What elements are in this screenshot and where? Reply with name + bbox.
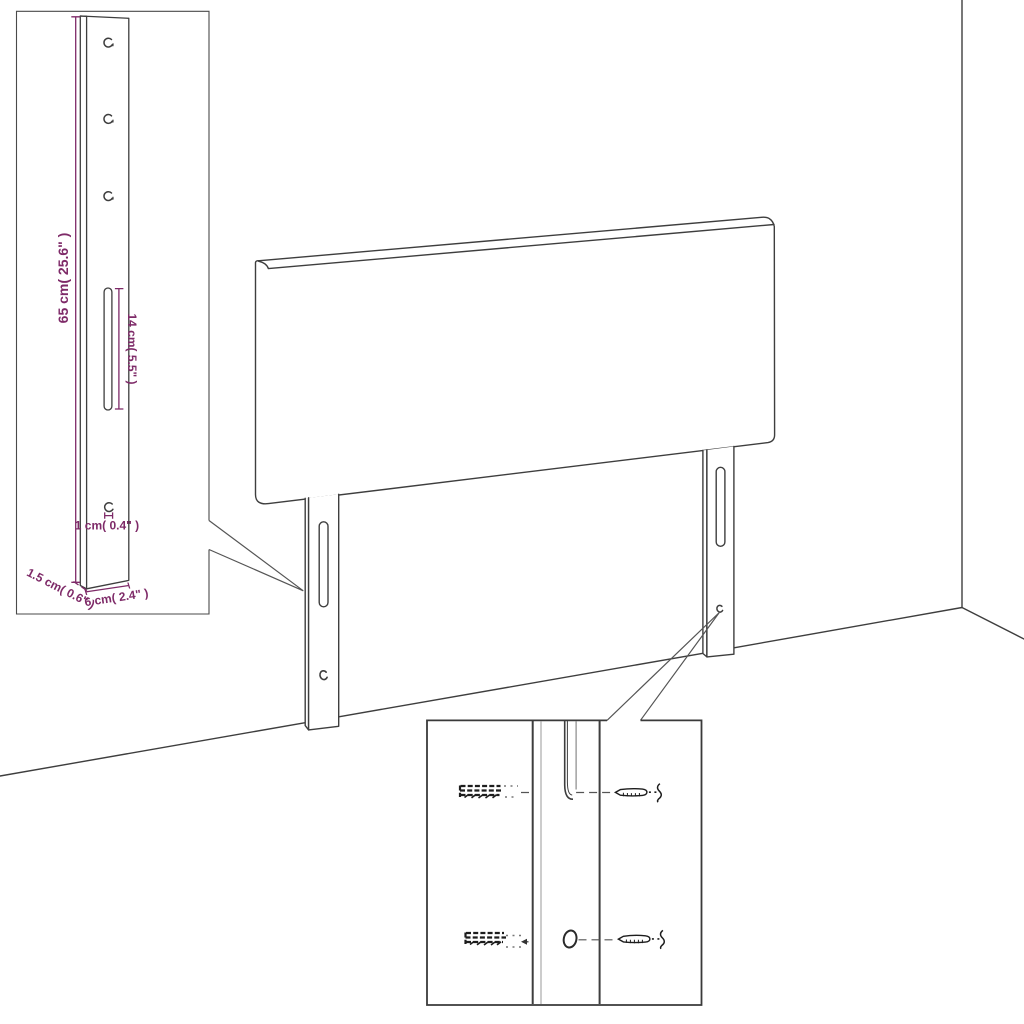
svg-text:14 cm( 5.5" ): 14 cm( 5.5" ) <box>125 313 139 384</box>
svg-text:65 cm( 25.6" ): 65 cm( 25.6" ) <box>55 233 71 324</box>
svg-text:1 cm( 0.4" ): 1 cm( 0.4" ) <box>75 519 139 533</box>
